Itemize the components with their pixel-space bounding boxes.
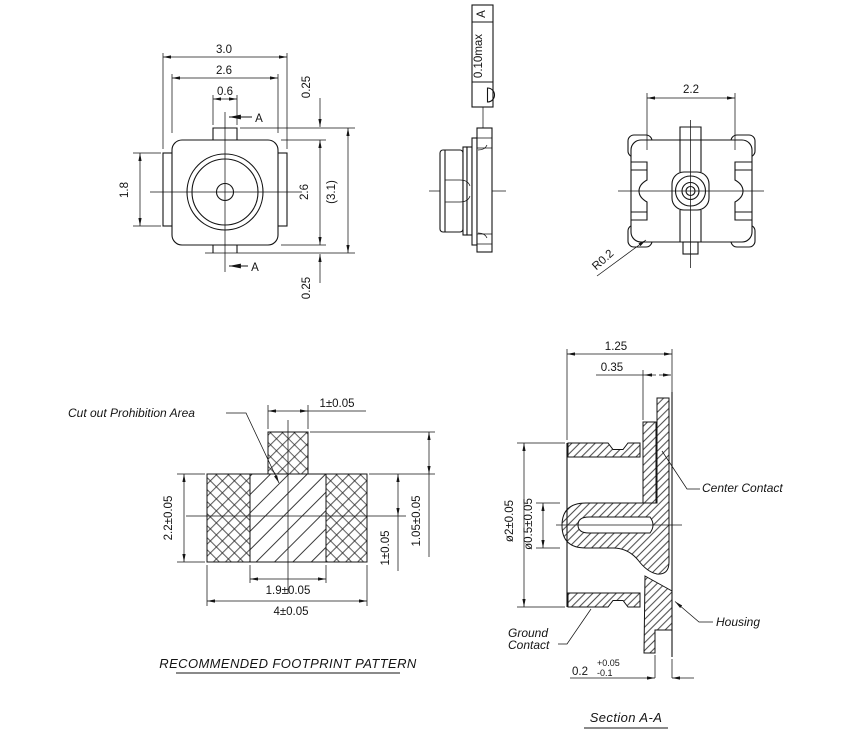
- fp-ext-left: [177, 474, 205, 562]
- housing-lower-block: [644, 576, 672, 653]
- dim-body-width: 2.6: [216, 65, 232, 77]
- dim-section-height: 1.25: [605, 341, 627, 353]
- prohibition-area: [250, 474, 326, 562]
- front-ext-lines-left: [133, 153, 161, 226]
- footprint-title: RECOMMENDED FOOTPRINT PATTERN: [159, 656, 417, 671]
- dim-center-to-pad-bottom: 1±0.05: [380, 530, 392, 565]
- fcf-datum-ref: A: [476, 10, 488, 18]
- footprint-pattern: Cut out Prohibition Area 1±0.05 2.2±0.05…: [68, 398, 435, 673]
- dim-standoff: 0.2: [572, 666, 588, 678]
- label-housing: Housing: [716, 615, 760, 629]
- label-ground-line2: Contact: [508, 638, 550, 652]
- dim-section-offset: 0.35: [601, 362, 623, 374]
- dim-pad-height: 2.2±0.05: [163, 496, 175, 541]
- section-view: 1.25 0.35 ø2±0.05 ø0.5±0.05 0.2 +0.05 -0…: [504, 341, 783, 728]
- section-label-bottom: A: [251, 262, 259, 274]
- bottom-view: 2.2 R0.2: [590, 84, 764, 276]
- dim-inner-span: 1.9±0.05: [266, 585, 311, 597]
- housing-upper-column: [643, 422, 656, 503]
- top-pad: [268, 432, 308, 474]
- dim-standoff-plus: +0.05: [597, 658, 620, 668]
- section-label-top: A: [255, 113, 263, 125]
- technical-drawing-page: 3.0 2.6 0.6 1.8 0.25 2.6 (3.1) 0.25 A A: [0, 0, 866, 736]
- right-pad: [326, 474, 367, 562]
- ground-contact-bottom: [568, 593, 640, 607]
- ground-contact-top: [568, 443, 640, 457]
- housing-leader: [675, 602, 713, 623]
- dim-corner-radius: R0.2: [590, 248, 616, 273]
- dim-tab-height: 1.8: [119, 182, 131, 198]
- ground-contact-leader: [558, 609, 591, 644]
- dim-overall-width-fp: 4±0.05: [273, 606, 308, 618]
- dim-inner-dia: ø0.5±0.05: [523, 498, 535, 550]
- side-view: 0.10max A: [429, 5, 506, 252]
- sec-ext-standoff: [655, 655, 672, 678]
- section-title: Section A-A: [590, 710, 663, 725]
- dim-overall-height: (3.1): [326, 180, 338, 204]
- left-pad: [207, 474, 250, 562]
- label-center-contact: Center Contact: [702, 481, 783, 495]
- dim-outer-dia: ø2±0.05: [504, 500, 516, 542]
- connector-drawing: 3.0 2.6 0.6 1.8 0.25 2.6 (3.1) 0.25 A A: [0, 0, 866, 736]
- dim-stem-width: 0.6: [217, 86, 233, 98]
- prohibition-callout: Cut out Prohibition Area: [68, 406, 195, 420]
- side-groove-ring: [463, 147, 467, 235]
- dim-top-pad-height: 1.05±0.05: [411, 495, 423, 546]
- side-collar: [467, 147, 472, 235]
- sec-ext-offset: [596, 370, 644, 420]
- front-centerlines: [150, 112, 302, 272]
- dim-standoff-minus: -0.1: [597, 668, 613, 678]
- dim-body-height: 2.6: [299, 184, 311, 200]
- dim-top-offset: 0.25: [301, 76, 313, 98]
- dim-overall-width: 3.0: [216, 44, 232, 56]
- front-view: 3.0 2.6 0.6 1.8 0.25 2.6 (3.1) 0.25 A A: [119, 44, 355, 299]
- dim-bottom-offset: 0.25: [301, 277, 313, 299]
- side-body: [472, 138, 477, 245]
- side-barrel: [440, 150, 463, 232]
- dim-bottom-width: 2.2: [683, 84, 699, 96]
- dim-top-pad-width: 1±0.05: [319, 398, 354, 410]
- fcf-tolerance-value: 0.10max: [473, 34, 485, 78]
